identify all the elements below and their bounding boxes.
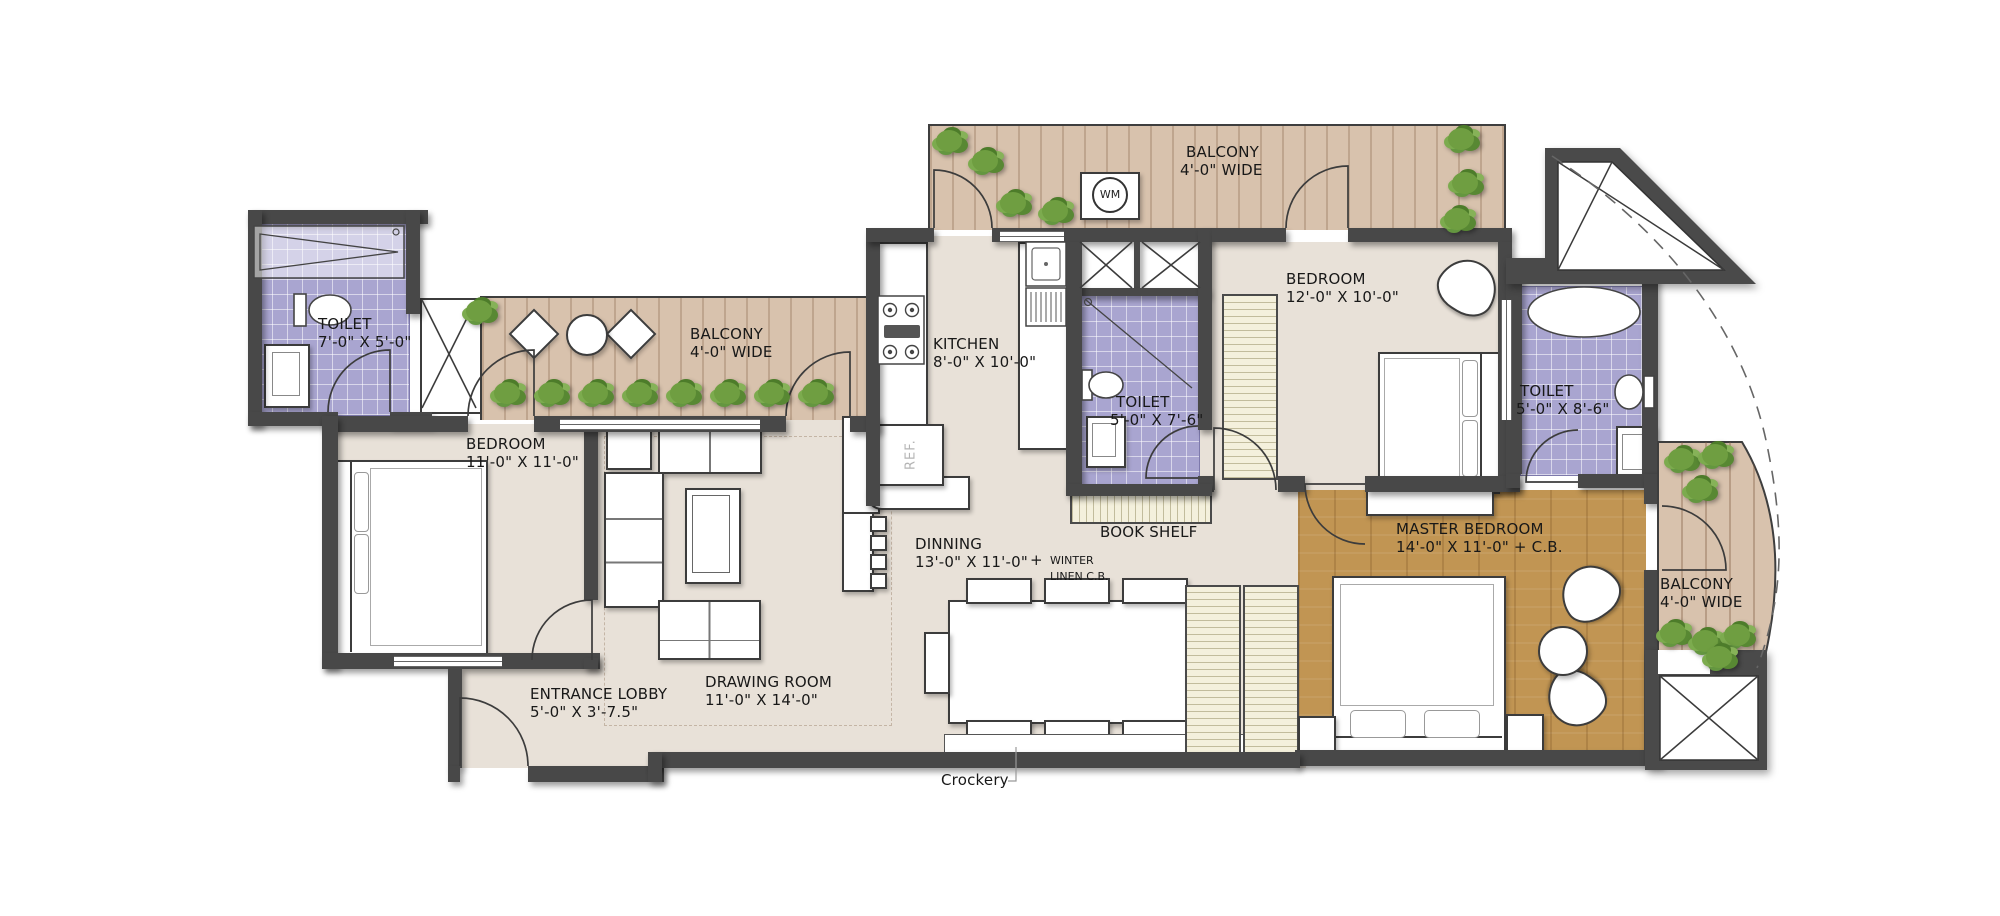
plant-icon <box>466 300 492 322</box>
plant-icon <box>972 150 998 172</box>
bedroom-center-dims: 12'-0" X 10'-0" <box>1286 289 1399 306</box>
balcony-right-deck <box>1658 442 1775 652</box>
bedroom-center-name: BEDROOM <box>1286 271 1366 288</box>
plant-icon <box>1702 444 1728 466</box>
toilet-center-name: TOILET <box>1116 394 1170 411</box>
kitchen-sink-icon <box>1026 242 1066 326</box>
toilet-center-dims: 5'-0" X 7'-6" <box>1110 412 1203 429</box>
dining-dims: 13'-0" X 11'-0" <box>915 554 1028 571</box>
plant-icon <box>1706 646 1732 668</box>
bathtub-icon <box>1528 287 1640 337</box>
plant-icon <box>1686 478 1712 500</box>
toilet-right-name: TOILET <box>1520 383 1574 400</box>
dining-name: DINNING <box>915 536 982 553</box>
plant-icon <box>582 382 608 404</box>
kitchen-dims: 8'-0" X 10'-0" <box>933 354 1036 371</box>
toilet-top-left-dims: 7'-0" X 5'-0" <box>318 334 411 351</box>
balcony-left-dims: 4'-0" WIDE <box>690 344 773 361</box>
plant-icon <box>538 382 564 404</box>
plant-icon <box>1000 192 1026 214</box>
entrance-lobby-name: ENTRANCE LOBBY <box>530 686 667 703</box>
plant-icon <box>1448 128 1474 150</box>
kitchen-name: KITCHEN <box>933 336 999 353</box>
plant-icon <box>714 382 740 404</box>
plant-icon <box>1452 172 1478 194</box>
balcony-right-name: BALCONY <box>1660 576 1733 593</box>
bedroom-left-dims: 11'-0" X 11'-0" <box>466 454 579 471</box>
entrance-lobby-dims: 5'-0" X 3'-7.5" <box>530 704 638 721</box>
plant-icon <box>670 382 696 404</box>
plant-icon <box>626 382 652 404</box>
balcony-right-dims: 4'-0" WIDE <box>1660 594 1743 611</box>
bedroom-left-name: BEDROOM <box>466 436 546 453</box>
crockery-label: Crockery <box>941 772 1009 789</box>
dining-note-line2: LINEN C.B. <box>1050 571 1109 583</box>
toilet-right-dims: 5'-0" X 8'-6" <box>1516 401 1609 418</box>
drawing-room-name: DRAWING ROOM <box>705 674 832 691</box>
plant-icon <box>1444 208 1470 230</box>
plant-icon <box>494 382 520 404</box>
plant-icon <box>1660 622 1686 644</box>
plant-icon <box>1668 448 1694 470</box>
plant-icon <box>758 382 784 404</box>
balcony-left-name: BALCONY <box>690 326 763 343</box>
plant-icon <box>1042 200 1068 222</box>
balcony-top-dims: 4'-0" WIDE <box>1180 162 1263 179</box>
drawing-room-dims: 11'-0" X 14'-0" <box>705 692 818 709</box>
plant-icon <box>1724 624 1750 646</box>
stove-icon <box>878 296 924 364</box>
lift-shaft-bottom-right <box>1645 650 1767 770</box>
dining-note-line1: WINTER <box>1050 555 1094 567</box>
book-shelf-label: BOOK SHELF <box>1100 524 1198 541</box>
plant-icon <box>936 130 962 152</box>
plant-icon <box>802 382 828 404</box>
master-bedroom-dims: 14'-0" X 11'-0" + C.B. <box>1396 539 1563 556</box>
toilet-top-left-name: TOILET <box>318 316 372 333</box>
balcony-top-name: BALCONY <box>1186 144 1259 161</box>
dining-plus: + <box>1030 552 1043 569</box>
crockery-leader-line <box>1008 747 1016 781</box>
master-bedroom-name: MASTER BEDROOM <box>1396 521 1544 538</box>
floor-plan: REF. WM <box>0 0 2000 916</box>
